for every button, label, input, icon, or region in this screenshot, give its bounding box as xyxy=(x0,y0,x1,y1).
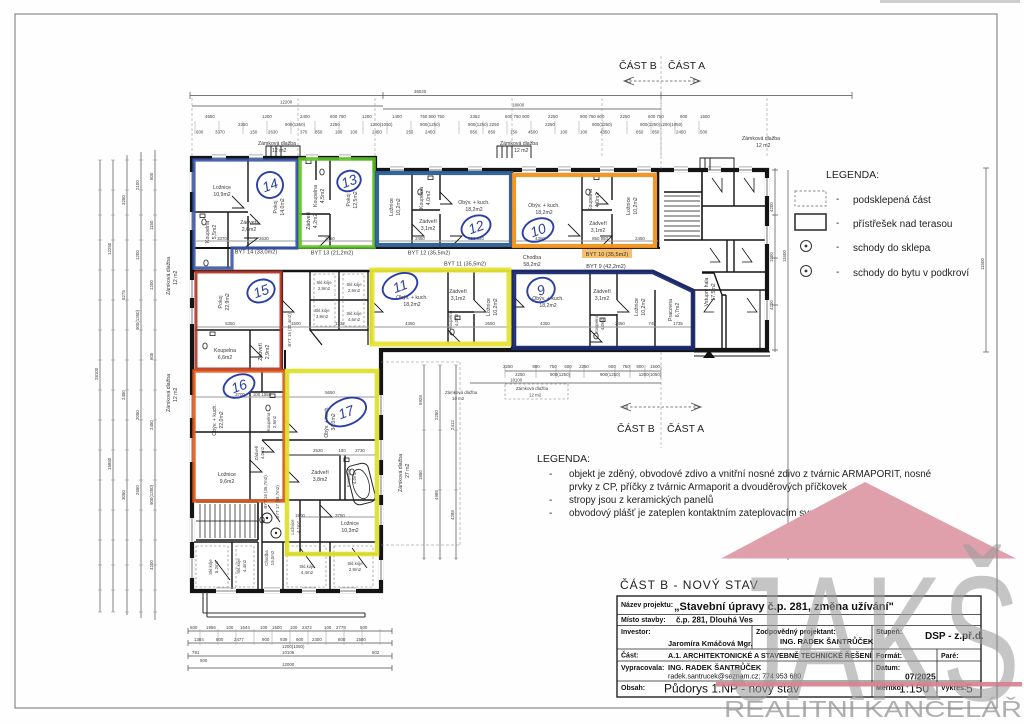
svg-text:2630: 2630 xyxy=(259,236,269,241)
svg-text:2650: 2650 xyxy=(135,485,140,495)
svg-text:3,1m2: 3,1m2 xyxy=(451,296,466,302)
svg-text:5650: 5650 xyxy=(325,390,335,395)
svg-text:ČÁST B: ČÁST B xyxy=(619,59,657,72)
svg-text:Část:: Část: xyxy=(621,651,639,660)
svg-text:2472: 2472 xyxy=(302,625,312,630)
svg-text:100: 100 xyxy=(560,130,568,135)
svg-text:100: 100 xyxy=(260,625,268,630)
svg-text:12 m2: 12 m2 xyxy=(173,387,179,402)
svg-text:17,5m2: 17,5m2 xyxy=(711,283,717,300)
svg-text:2412: 2412 xyxy=(450,420,455,430)
svg-text:1500: 1500 xyxy=(700,114,710,119)
svg-text:850: 850 xyxy=(488,130,496,135)
svg-text:2,9m2: 2,9m2 xyxy=(348,288,361,293)
svg-text:4,0m2: 4,0m2 xyxy=(426,191,432,206)
svg-text:1200: 1200 xyxy=(135,250,140,260)
svg-text:2352: 2352 xyxy=(470,114,480,119)
svg-text:Zámková dlažba: Zámková dlažba xyxy=(398,454,404,492)
svg-text:19,0m2: 19,0m2 xyxy=(270,550,275,565)
svg-text:4650: 4650 xyxy=(205,114,215,119)
svg-text:14,0m2: 14,0m2 xyxy=(280,198,286,215)
svg-text:2450: 2450 xyxy=(325,236,335,241)
svg-text:600: 600 xyxy=(196,130,204,135)
svg-text:791: 791 xyxy=(192,650,200,655)
svg-text:18,2m2: 18,2m2 xyxy=(465,207,482,213)
svg-text:Koupelna: Koupelna xyxy=(205,221,211,243)
svg-text:2250: 2250 xyxy=(548,114,558,119)
svg-text:Chodba: Chodba xyxy=(523,255,541,261)
svg-text:BYT 15 (32,4m2): BYT 15 (32,4m2) xyxy=(287,313,292,347)
svg-text:2250: 2250 xyxy=(620,114,630,119)
svg-text:18,2m2: 18,2m2 xyxy=(535,210,552,216)
svg-text:LEGENDA:: LEGENDA: xyxy=(537,453,590,465)
svg-text:1500: 1500 xyxy=(295,513,305,518)
svg-text:BYT 16 (35,7m2): BYT 16 (35,7m2) xyxy=(263,475,268,509)
svg-text:1200: 1200 xyxy=(149,280,154,290)
svg-text:Zámková dlažba: Zámková dlažba xyxy=(742,136,780,142)
svg-text:28100: 28100 xyxy=(94,367,99,380)
svg-text:2730: 2730 xyxy=(355,448,365,453)
svg-text:2477: 2477 xyxy=(234,637,244,642)
svg-text:-: - xyxy=(836,242,839,253)
svg-text:Pokoj: Pokoj xyxy=(218,296,224,309)
svg-text:100: 100 xyxy=(350,130,358,135)
svg-text:100: 100 xyxy=(324,625,332,630)
svg-text:2650: 2650 xyxy=(485,321,495,326)
svg-text:6,7m2: 6,7m2 xyxy=(675,303,681,318)
svg-text:150: 150 xyxy=(250,130,258,135)
svg-text:2,6m2: 2,6m2 xyxy=(242,227,257,233)
svg-text:Obsah:: Obsah: xyxy=(621,685,645,692)
svg-text:1200: 1200 xyxy=(262,114,272,119)
svg-text:58,2m2: 58,2m2 xyxy=(523,262,540,268)
svg-text:10,9m2: 10,9m2 xyxy=(213,192,230,198)
svg-text:3250: 3250 xyxy=(121,195,126,205)
svg-text:900: 900 xyxy=(262,637,270,642)
svg-text:800: 800 xyxy=(338,637,346,642)
svg-text:1200: 1200 xyxy=(362,114,372,119)
svg-text:34,0m2: 34,0m2 xyxy=(331,413,337,430)
svg-text:Zádveří: Zádveří xyxy=(593,289,611,295)
svg-text:BYT 13 (21,2m2): BYT 13 (21,2m2) xyxy=(311,251,354,257)
svg-text:9,6m2: 9,6m2 xyxy=(220,479,235,485)
svg-text:800: 800 xyxy=(216,637,224,642)
svg-text:1500: 1500 xyxy=(291,321,301,326)
svg-text:Zádveří: Zádveří xyxy=(311,470,329,476)
svg-text:500: 500 xyxy=(700,130,708,135)
svg-text:10,2m2: 10,2m2 xyxy=(396,198,402,215)
svg-text:370: 370 xyxy=(300,130,308,135)
svg-text:Skl.kóje: Skl.kóje xyxy=(347,561,363,566)
svg-text:Zámková dlažba: Zámková dlažba xyxy=(516,386,549,391)
svg-text:2250: 2250 xyxy=(503,364,513,369)
svg-text:100 1550: 100 1550 xyxy=(253,392,272,397)
svg-text:22,0m2: 22,0m2 xyxy=(219,411,225,428)
svg-text:4500: 4500 xyxy=(528,130,538,135)
svg-text:BYT 11 (35,5m2): BYT 11 (35,5m2) xyxy=(444,262,486,268)
svg-text:Zámková dlažba: Zámková dlažba xyxy=(166,374,172,412)
svg-text:REALITNÍ KANCELÁŘ: REALITNÍ KANCELÁŘ xyxy=(724,696,1022,722)
svg-text:Vypracovala:: Vypracovala: xyxy=(621,665,664,672)
svg-text:900: 900 xyxy=(532,364,540,369)
svg-text:2250: 2250 xyxy=(434,410,439,420)
svg-text:900(1250): 900(1250) xyxy=(550,372,571,377)
svg-text:750: 750 xyxy=(549,364,557,369)
svg-text:Skl.kóje: Skl.kóje xyxy=(346,311,362,316)
svg-text:22,9m2: 22,9m2 xyxy=(225,293,231,310)
svg-text:Koupelna: Koupelna xyxy=(594,314,599,333)
svg-text:500: 500 xyxy=(200,658,208,663)
svg-text:Koupelna: Koupelna xyxy=(419,187,425,209)
svg-text:Koupelna: Koupelna xyxy=(346,468,351,487)
svg-text:18,2m2: 18,2m2 xyxy=(403,302,420,308)
svg-text:2250: 2250 xyxy=(579,364,589,369)
svg-text:Zádveří: Zádveří xyxy=(589,221,607,227)
svg-text:1735: 1735 xyxy=(673,321,683,326)
svg-text:5275: 5275 xyxy=(121,290,126,300)
svg-text:12250: 12250 xyxy=(107,242,112,255)
svg-text:750 900 750: 750 900 750 xyxy=(420,114,445,119)
svg-text:4,4m2: 4,4m2 xyxy=(301,570,314,575)
svg-text:900(1250): 900(1250) xyxy=(285,122,306,127)
svg-text:600: 600 xyxy=(564,364,572,369)
svg-text:850: 850 xyxy=(652,130,660,135)
svg-text:1850: 1850 xyxy=(418,470,423,480)
svg-text:4,0m2: 4,0m2 xyxy=(352,471,357,484)
svg-text:500: 500 xyxy=(190,625,198,630)
svg-text:12 m2: 12 m2 xyxy=(529,393,542,398)
svg-text:LEGENDA:: LEGENDA: xyxy=(826,169,879,181)
svg-text:Ložnice: Ložnice xyxy=(341,521,359,527)
svg-text:100: 100 xyxy=(226,625,234,630)
svg-text:4200: 4200 xyxy=(149,560,154,570)
svg-text:3,8m2: 3,8m2 xyxy=(313,477,328,483)
svg-text:10,2m2: 10,2m2 xyxy=(633,197,639,214)
svg-text:Vstupní hala: Vstupní hala xyxy=(704,277,710,306)
svg-text:10 m2: 10 m2 xyxy=(452,396,465,401)
svg-text:3050: 3050 xyxy=(121,490,126,500)
svg-text:BYT 14 (33,0m2): BYT 14 (33,0m2) xyxy=(235,250,278,256)
svg-text:Obýv. + kuch.: Obýv. + kuch. xyxy=(212,404,218,435)
svg-text:2,5m2: 2,5m2 xyxy=(272,415,277,428)
svg-text:Zádveří: Zádveří xyxy=(254,445,259,461)
svg-text:2450: 2450 xyxy=(121,390,126,400)
svg-text:10,3m2: 10,3m2 xyxy=(341,528,358,534)
svg-text:2630: 2630 xyxy=(268,130,278,135)
svg-text:600 750 900: 600 750 900 xyxy=(505,114,530,119)
svg-text:600: 600 xyxy=(149,172,154,180)
svg-text:Skl.kóje: Skl.kóje xyxy=(314,308,330,313)
svg-text:4,0m2: 4,0m2 xyxy=(595,193,601,208)
svg-text:BYT 10 (35,5m2): BYT 10 (35,5m2) xyxy=(586,252,629,258)
svg-text:4,1m2: 4,1m2 xyxy=(296,520,301,533)
svg-text:4,6m2: 4,6m2 xyxy=(348,317,361,322)
svg-text:939: 939 xyxy=(280,637,288,642)
svg-text:Zámková dlažba: Zámková dlažba xyxy=(166,257,172,295)
svg-text:2520: 2520 xyxy=(313,448,323,453)
svg-text:2,9m2: 2,9m2 xyxy=(349,567,362,572)
svg-text:6,6m2: 6,6m2 xyxy=(218,355,233,361)
svg-text:4,0m2: 4,0m2 xyxy=(454,313,459,326)
svg-text:přístřešek nad terasou: přístřešek nad terasou xyxy=(853,219,953,230)
svg-text:1500: 1500 xyxy=(272,625,282,630)
svg-text:850 850: 850 850 xyxy=(592,236,608,241)
svg-text:18,2m2: 18,2m2 xyxy=(539,303,556,309)
svg-text:15850: 15850 xyxy=(107,457,112,470)
svg-text:stropy jsou z keramických pane: stropy jsou z keramických panelů xyxy=(569,495,713,506)
svg-text:2450: 2450 xyxy=(425,130,435,135)
svg-text:12 m2: 12 m2 xyxy=(173,270,179,285)
svg-text:5350: 5350 xyxy=(225,321,235,326)
svg-text:4350: 4350 xyxy=(540,321,550,326)
svg-text:2,9m2: 2,9m2 xyxy=(265,345,271,360)
svg-text:objekt je zděný, obvodové zdiv: objekt je zděný, obvodové zdivo a vnitřn… xyxy=(569,469,932,480)
svg-text:2450: 2450 xyxy=(676,130,686,135)
svg-text:ČÁST A: ČÁST A xyxy=(668,59,705,72)
svg-text:1150: 1150 xyxy=(149,220,154,230)
svg-text:2778: 2778 xyxy=(336,625,346,630)
svg-text:11600: 11600 xyxy=(782,250,787,262)
svg-text:745: 745 xyxy=(648,321,656,326)
svg-text:Pokoj: Pokoj xyxy=(346,194,352,207)
svg-text:12 m2: 12 m2 xyxy=(272,148,287,154)
svg-text:900(1250) 2250: 900(1250) 2250 xyxy=(468,122,500,127)
svg-text:850: 850 xyxy=(470,130,478,135)
svg-text:BYT 9 (42,2m2): BYT 9 (42,2m2) xyxy=(586,264,626,270)
svg-text:1200(1050): 1200(1050) xyxy=(370,122,393,127)
svg-text:4,0m2: 4,0m2 xyxy=(260,446,265,459)
svg-text:12 m2: 12 m2 xyxy=(756,143,771,149)
svg-text:-: - xyxy=(549,469,552,480)
svg-text:Název projektu:: Název projektu: xyxy=(621,602,673,609)
svg-text:-: - xyxy=(836,267,839,278)
svg-text:Zámková dlažba: Zámková dlažba xyxy=(445,390,478,395)
svg-text:12 m2: 12 m2 xyxy=(514,148,529,154)
svg-text:Koupelna: Koupelna xyxy=(588,189,594,211)
svg-text:Chodba: Chodba xyxy=(264,550,269,566)
svg-text:Skl.kóje: Skl.kóje xyxy=(316,280,332,285)
svg-text:podsklepená část: podsklepená část xyxy=(853,195,931,206)
svg-text:4350: 4350 xyxy=(600,130,610,135)
svg-text:10,2m2: 10,2m2 xyxy=(493,298,499,315)
svg-text:27 m2: 27 m2 xyxy=(405,463,411,478)
svg-text:Ložnice: Ložnice xyxy=(213,185,231,191)
svg-text:2300: 2300 xyxy=(312,637,322,642)
svg-text:18000: 18000 xyxy=(512,103,525,108)
svg-text:BYT 17 (58,7m2): BYT 17 (58,7m2) xyxy=(275,485,280,519)
svg-text:4,5m2: 4,5m2 xyxy=(320,189,326,204)
svg-text:36020: 36020 xyxy=(414,89,427,94)
svg-text:10,2m2: 10,2m2 xyxy=(641,298,647,315)
svg-text:600 750: 600 750 xyxy=(330,114,346,119)
svg-text:900(1250): 900(1250) xyxy=(135,309,140,330)
svg-text:Koupelna: Koupelna xyxy=(214,348,236,354)
svg-text:12000: 12000 xyxy=(282,662,295,667)
svg-text:1500: 1500 xyxy=(650,364,660,369)
svg-text:BYT 12 (35,5m2): BYT 12 (35,5m2) xyxy=(408,251,451,257)
svg-text:4288: 4288 xyxy=(450,510,455,520)
svg-text:-: - xyxy=(549,495,552,506)
svg-text:4,0m2: 4,0m2 xyxy=(600,317,605,330)
svg-text:900: 900 xyxy=(680,114,688,119)
svg-text:3370: 3370 xyxy=(215,130,225,135)
svg-text:1200(1050): 1200(1050) xyxy=(639,372,662,377)
svg-text:Ložnice: Ložnice xyxy=(218,472,236,478)
svg-text:5,2m2: 5,2m2 xyxy=(214,560,219,573)
svg-text:850: 850 xyxy=(636,130,644,135)
svg-text:2050: 2050 xyxy=(135,410,140,420)
svg-text:2,9m2: 2,9m2 xyxy=(318,286,331,291)
svg-text:18100: 18100 xyxy=(510,378,523,383)
svg-text:Ložnice: Ložnice xyxy=(486,298,492,316)
svg-text:Zádveří: Zádveří xyxy=(240,220,258,226)
svg-text:5928: 5928 xyxy=(418,395,423,405)
svg-text:Koupelna: Koupelna xyxy=(266,412,271,431)
svg-text:ČÁST B: ČÁST B xyxy=(617,422,655,435)
svg-text:4,4m2: 4,4m2 xyxy=(242,559,247,572)
svg-text:-: - xyxy=(836,218,839,229)
svg-text:2100: 2100 xyxy=(135,180,140,190)
svg-text:1400: 1400 xyxy=(392,114,402,119)
svg-text:150: 150 xyxy=(510,130,518,135)
svg-text:Místo stavby:: Místo stavby: xyxy=(621,617,666,624)
svg-text:schody do sklepa: schody do sklepa xyxy=(853,243,931,254)
svg-text:1956: 1956 xyxy=(206,625,216,630)
svg-text:1384: 1384 xyxy=(194,637,204,642)
svg-text:900(1250): 900(1250) xyxy=(600,372,621,377)
svg-text:Ložnice: Ložnice xyxy=(634,298,640,316)
svg-text:2450: 2450 xyxy=(149,420,154,430)
svg-text:2450: 2450 xyxy=(615,321,625,326)
svg-text:10106: 10106 xyxy=(282,650,295,655)
svg-text:Obýv. + kuch.: Obýv. + kuch. xyxy=(458,200,489,206)
svg-text:12,5m2: 12,5m2 xyxy=(353,191,359,208)
svg-text:Zádveří: Zádveří xyxy=(258,343,264,361)
svg-text:-: - xyxy=(549,508,552,519)
svg-text:750: 750 xyxy=(622,364,630,369)
svg-text:900(1250): 900(1250) xyxy=(149,484,154,505)
svg-text:1732: 1732 xyxy=(335,321,345,326)
svg-text:600: 600 xyxy=(149,352,154,360)
svg-text:Skl.kóje: Skl.kóje xyxy=(299,564,315,569)
svg-text:500: 500 xyxy=(360,625,368,630)
svg-text:900: 900 xyxy=(636,364,644,369)
svg-text:ČÁST A: ČÁST A xyxy=(667,422,704,435)
svg-text:Pokoj: Pokoj xyxy=(273,201,279,214)
svg-text:100: 100 xyxy=(580,130,588,135)
svg-text:Skl.kóje: Skl.kóje xyxy=(346,282,362,287)
svg-text:2450: 2450 xyxy=(372,130,382,135)
svg-text:4,2m2: 4,2m2 xyxy=(313,214,319,229)
svg-text:3,1m2: 3,1m2 xyxy=(591,228,606,234)
svg-text:802: 802 xyxy=(372,650,380,655)
svg-text:600 750: 600 750 xyxy=(648,114,664,119)
svg-text:900(1250): 900(1250) xyxy=(592,122,613,127)
svg-text:Ložnice: Ložnice xyxy=(290,519,295,535)
svg-text:Pracovna: Pracovna xyxy=(668,299,674,321)
svg-text:3370: 3370 xyxy=(217,236,227,241)
svg-text:4200: 4200 xyxy=(769,202,774,212)
svg-text:3,1m2: 3,1m2 xyxy=(595,296,610,302)
svg-text:schody do bytu v podkroví: schody do bytu v podkroví xyxy=(853,268,969,279)
svg-text:4985: 4985 xyxy=(434,490,439,500)
svg-text:4200: 4200 xyxy=(769,300,774,310)
svg-text:Koupelna: Koupelna xyxy=(313,185,319,207)
svg-text:11500: 11500 xyxy=(980,258,985,270)
svg-text:3,9m2: 3,9m2 xyxy=(316,314,329,319)
svg-text:1500: 1500 xyxy=(769,252,774,262)
svg-text:900(1250)1200(1050): 900(1250)1200(1050) xyxy=(640,122,683,127)
svg-text:Zádveří: Zádveří xyxy=(306,212,312,230)
svg-text:2450: 2450 xyxy=(415,236,425,241)
svg-text:Investor:: Investor: xyxy=(621,629,651,636)
svg-text:600: 600 xyxy=(608,364,616,369)
svg-text:Skl.kóje: Skl.kóje xyxy=(236,558,241,574)
svg-text:Koupelna: Koupelna xyxy=(448,310,453,329)
svg-text:2450: 2450 xyxy=(635,236,645,241)
svg-text:Zádveří: Zádveří xyxy=(449,289,467,295)
svg-text:850: 850 xyxy=(315,130,323,135)
svg-text:1644: 1644 xyxy=(240,625,250,630)
svg-text:2250: 2250 xyxy=(545,122,555,127)
svg-text:Obýv. + kuch.: Obýv. + kuch. xyxy=(528,203,559,209)
svg-text:Zádveří: Zádveří xyxy=(419,219,437,225)
svg-text:900: 900 xyxy=(296,637,304,642)
svg-text:Ložnice: Ložnice xyxy=(626,197,632,215)
svg-text:Skl.kóje: Skl.kóje xyxy=(208,559,213,575)
svg-text:4350: 4350 xyxy=(405,321,415,326)
svg-text:3,1m2: 3,1m2 xyxy=(421,226,436,232)
svg-text:900 750 600: 900 750 600 xyxy=(580,114,605,119)
svg-text:-: - xyxy=(836,194,839,205)
svg-text:prvky z CP, příčky z tvárnic A: prvky z CP, příčky z tvárnic Armaporit a… xyxy=(569,482,847,493)
svg-text:12200: 12200 xyxy=(280,100,293,105)
svg-text:250: 250 xyxy=(406,130,414,135)
svg-text:Ložnice: Ložnice xyxy=(389,198,395,216)
svg-text:900(1250): 900(1250) xyxy=(420,122,441,127)
svg-text:1500: 1500 xyxy=(356,637,366,642)
svg-text:100: 100 xyxy=(338,448,346,453)
svg-text:2250: 2250 xyxy=(515,372,525,377)
svg-text:1200(1050): 1200(1050) xyxy=(282,644,305,649)
svg-text:100: 100 xyxy=(290,625,298,630)
svg-text:3750: 3750 xyxy=(335,513,345,518)
svg-text:2400: 2400 xyxy=(300,114,310,119)
